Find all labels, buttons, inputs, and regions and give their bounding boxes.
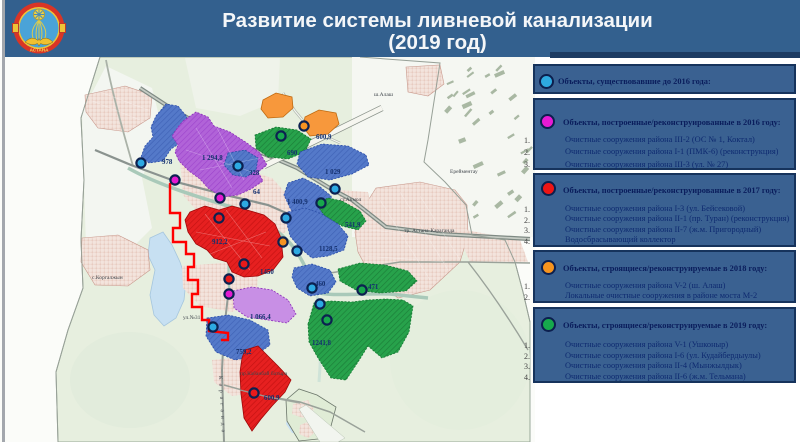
- svg-text:с.Коргалжын: с.Коргалжын: [92, 275, 123, 281]
- svg-text:1450: 1450: [260, 269, 274, 276]
- svg-text:1 066,4: 1 066,4: [250, 314, 271, 321]
- svg-text:600,9: 600,9: [316, 134, 332, 141]
- svg-text:328: 328: [249, 170, 260, 177]
- svg-text:690: 690: [287, 150, 298, 157]
- svg-text:600,9: 600,9: [264, 395, 280, 402]
- svg-text:1 400,9: 1 400,9: [287, 199, 308, 206]
- svg-text:тр. Астана-Караганда: тр. Астана-Караганда: [404, 228, 455, 234]
- svg-text:759,2: 759,2: [236, 349, 252, 356]
- svg-text:Ерейментау: Ерейментау: [450, 168, 478, 175]
- svg-text:912,2: 912,2: [212, 239, 228, 246]
- svg-text:1 294,8: 1 294,8: [202, 155, 223, 162]
- svg-text:ш.Алаш: ш.Алаш: [374, 92, 394, 98]
- svg-text:1 029: 1 029: [325, 169, 341, 176]
- svg-text:АСТАНА: АСТАНА: [30, 48, 50, 53]
- svg-text:471: 471: [368, 284, 379, 291]
- svg-text:ст.Акмол: ст.Акмол: [340, 197, 362, 203]
- svg-text:1241,8: 1241,8: [312, 340, 332, 347]
- svg-text:1128,5: 1128,5: [319, 246, 338, 253]
- svg-text:64: 64: [253, 189, 260, 196]
- svg-text:978: 978: [162, 159, 173, 166]
- svg-text:пр.Кабанбай батыра: пр.Кабанбай батыра: [240, 370, 288, 377]
- svg-text:ул.№31: ул.№31: [183, 315, 201, 321]
- svg-text:541,9: 541,9: [345, 222, 361, 229]
